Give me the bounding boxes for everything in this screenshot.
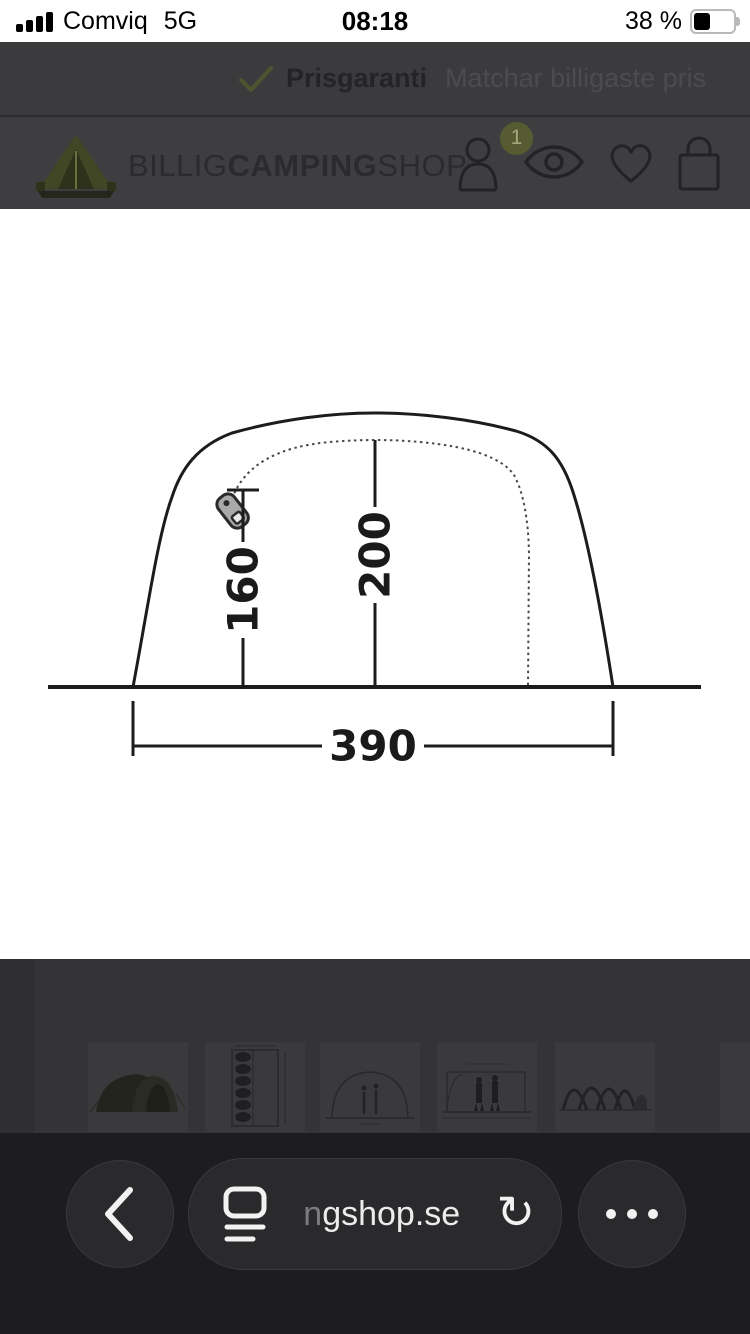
site-header: BILLIGCAMPINGSHOP 1: [0, 115, 750, 211]
tent-diagram: 160 200 390: [0, 209, 750, 959]
dimension-label-390: 390: [329, 722, 417, 771]
zipper-pull-icon: [214, 491, 252, 532]
browser-toolbar: ngshop.se ↻: [0, 1133, 750, 1334]
tent-logo-icon: [36, 129, 116, 203]
recently-viewed-eye-icon: [522, 140, 586, 184]
wishlist-heart-icon[interactable]: [608, 143, 654, 185]
address-bar[interactable]: ngshop.se ↻: [188, 1158, 562, 1270]
reader-view-icon[interactable]: [223, 1186, 267, 1242]
dimension-label-200: 200: [351, 511, 400, 599]
url-label: ngshop.se: [267, 1195, 496, 1234]
thumbnail-tent-photo[interactable]: [88, 1042, 188, 1132]
battery-percent-label: 38 %: [625, 7, 682, 36]
account-icon[interactable]: [456, 132, 500, 196]
price-guarantee-banner: Prisgaranti Matchar billigaste pris: [0, 42, 750, 115]
price-guarantee-subtitle: Matchar billigaste pris: [445, 63, 706, 94]
thumbnail-pole-frame-diagram[interactable]: [555, 1042, 655, 1132]
shop-logo-text: BILLIGCAMPINGSHOP: [128, 148, 467, 184]
back-chevron-icon: [100, 1184, 140, 1244]
checkmark-icon: [238, 64, 274, 94]
viewed-count-badge: 1: [500, 122, 533, 155]
ellipsis-icon: [606, 1209, 658, 1219]
iphone-screen: Comviq 5G 08:18 38 % Prisgaranti Matchar…: [0, 0, 750, 1334]
reload-icon[interactable]: ↻: [496, 1189, 535, 1235]
thumbnail-floor-plan[interactable]: [205, 1042, 305, 1132]
status-bar: Comviq 5G 08:18 38 %: [0, 0, 750, 42]
product-image-area[interactable]: 160 200 390: [0, 209, 750, 959]
thumbnail-side-view-people-diagram[interactable]: [437, 1042, 537, 1132]
more-options-button[interactable]: [578, 1160, 686, 1268]
recently-viewed-button[interactable]: 1: [522, 140, 586, 189]
cart-bag-icon[interactable]: [676, 135, 722, 193]
thumbnail-partial[interactable]: [720, 1042, 750, 1132]
thumbnail-front-view-diagram[interactable]: [320, 1042, 420, 1132]
thumbnail-gallery: [0, 959, 750, 1133]
back-button[interactable]: [66, 1160, 174, 1268]
battery-icon: [690, 9, 736, 34]
shop-logo[interactable]: BILLIGCAMPINGSHOP: [36, 129, 467, 203]
price-guarantee-title: Prisgaranti: [286, 63, 427, 94]
dimension-label-160: 160: [219, 546, 268, 634]
